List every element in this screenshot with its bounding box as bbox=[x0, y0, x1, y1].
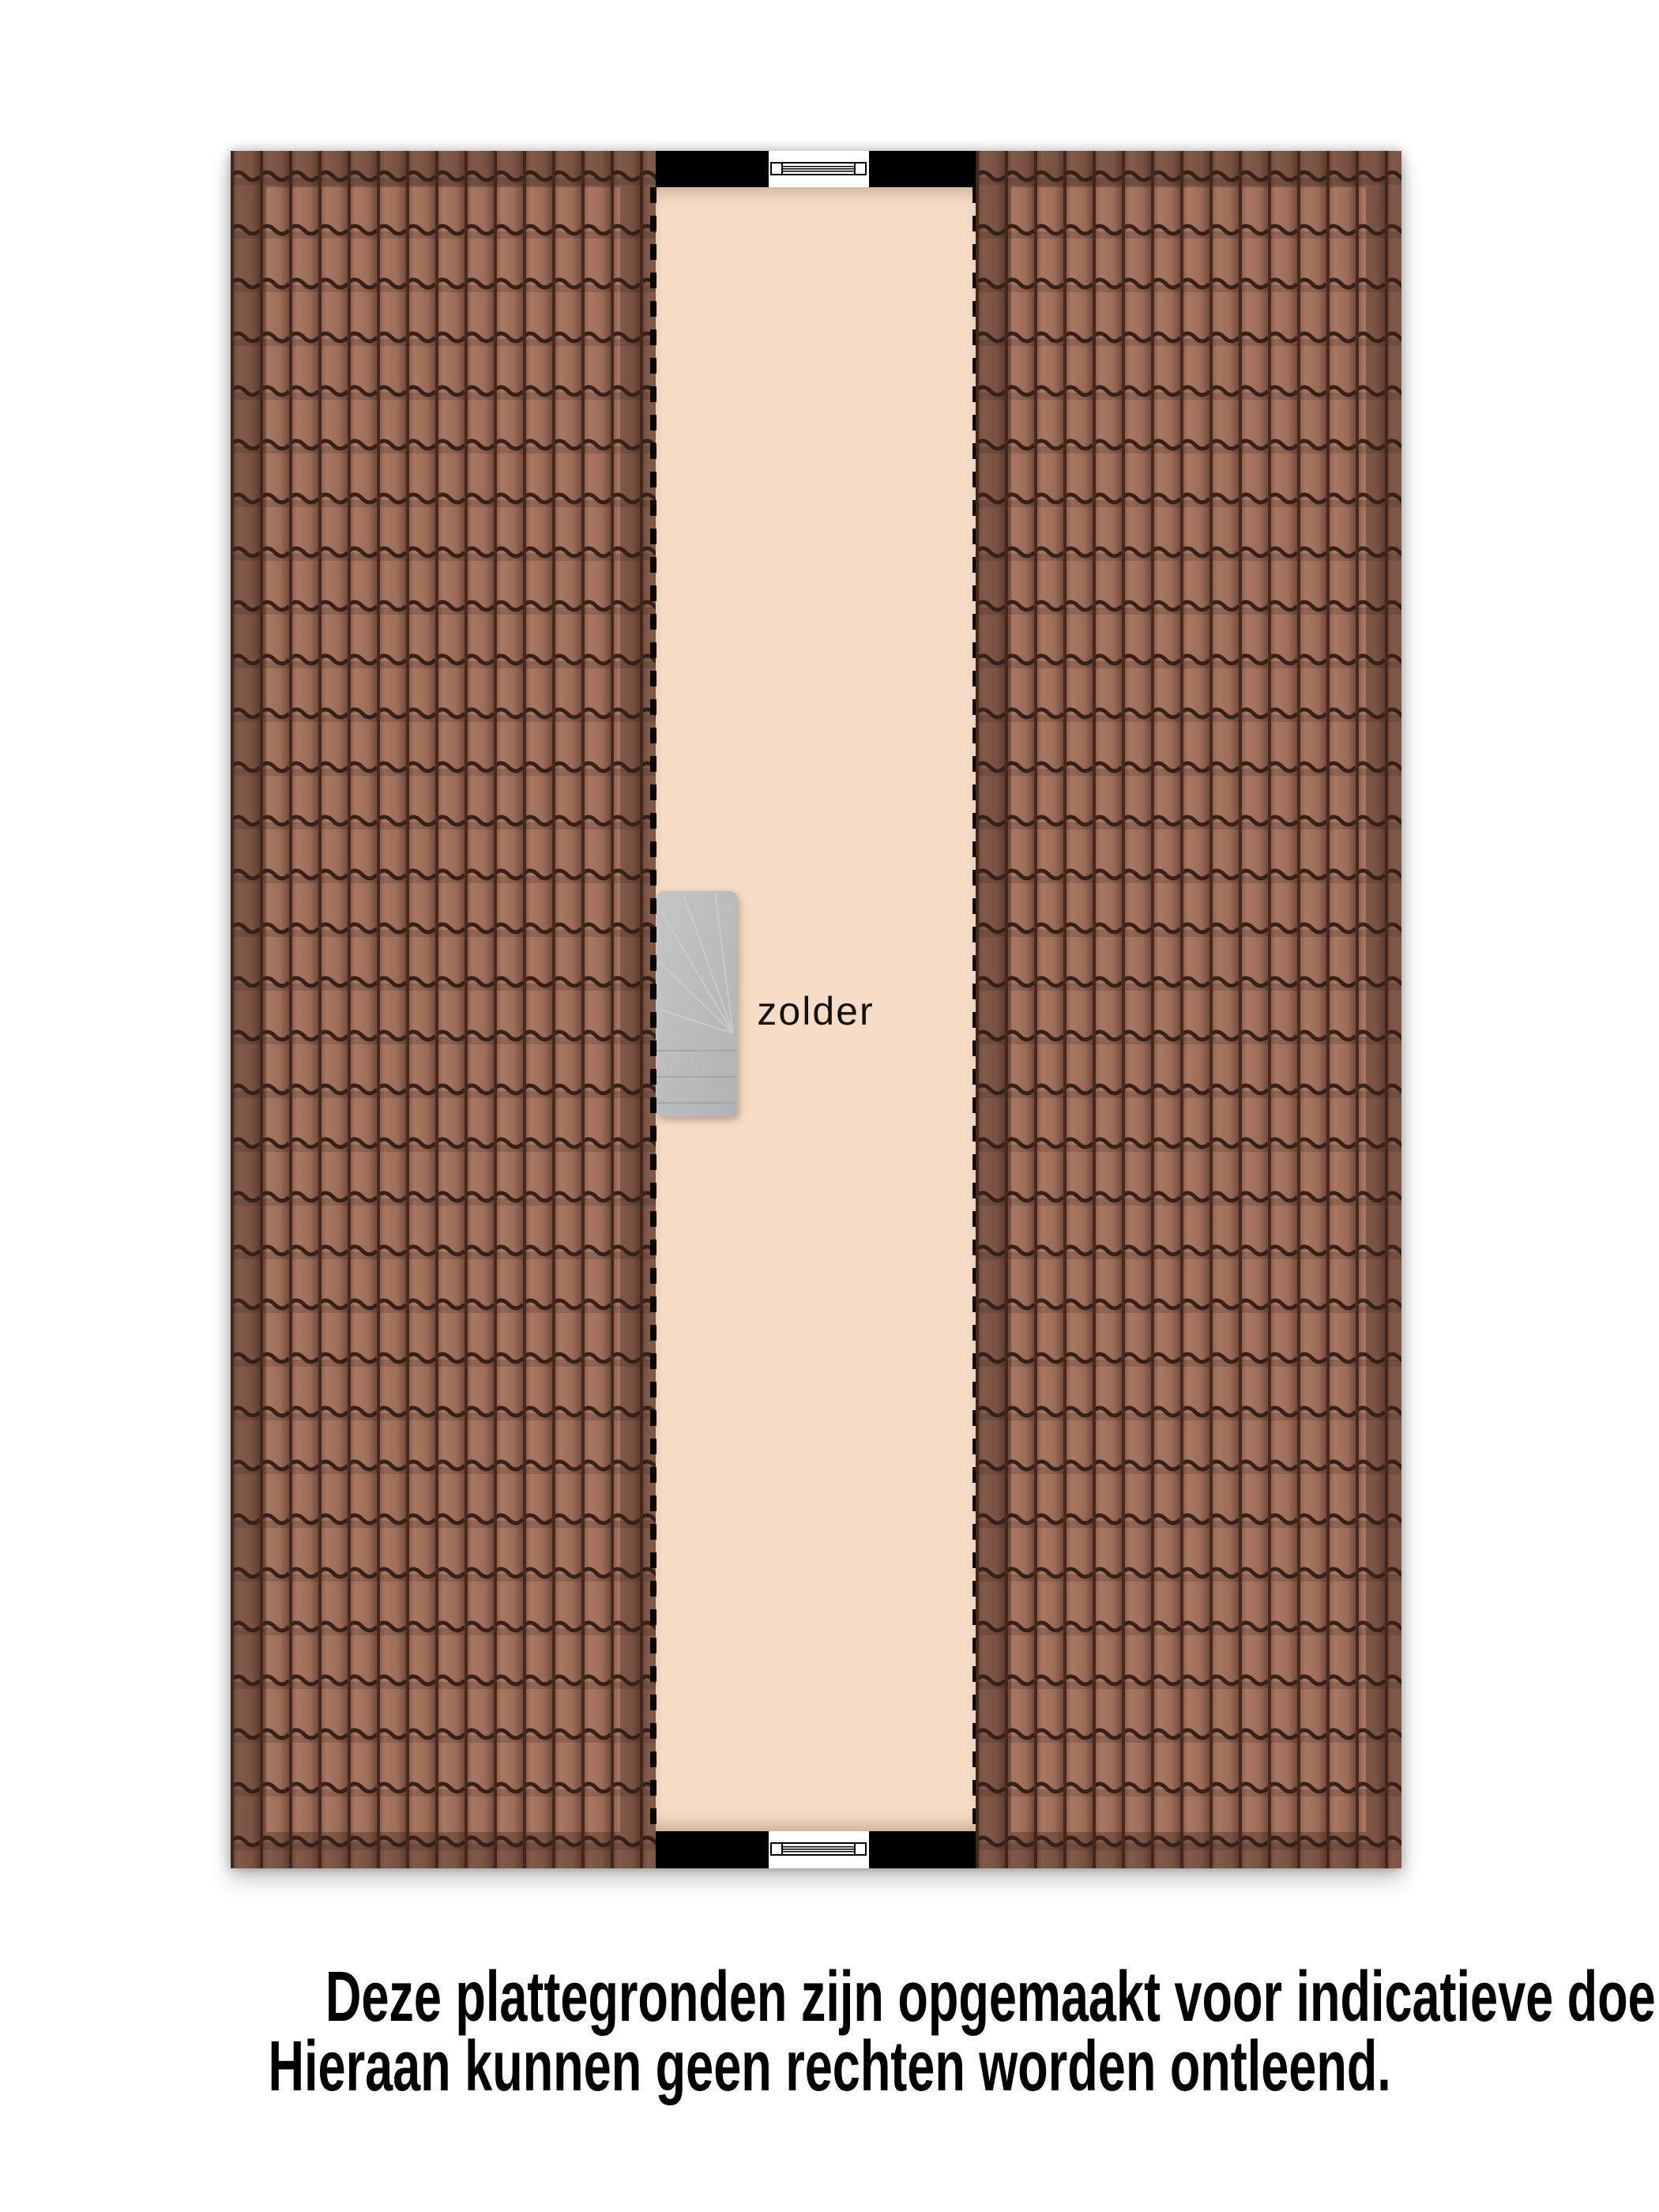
window-icon bbox=[770, 162, 867, 175]
disclaimer-line-1: Deze plattegronden zijn opgemaakt voor i… bbox=[0, 1962, 1659, 2032]
wall-top bbox=[656, 151, 976, 187]
window-post bbox=[772, 1844, 783, 1854]
roof-left bbox=[231, 151, 656, 1868]
roof-tiles-icon bbox=[976, 151, 1401, 1868]
roof-tiles-icon bbox=[231, 151, 656, 1868]
roof-right bbox=[976, 151, 1401, 1868]
window-glazing bbox=[783, 164, 854, 174]
window-icon bbox=[770, 1842, 867, 1856]
window-post bbox=[854, 164, 865, 174]
window-post bbox=[854, 1844, 865, 1854]
window-top bbox=[769, 151, 869, 187]
disclaimer: Deze plattegronden zijn opgemaakt voor i… bbox=[0, 1962, 1659, 2101]
window-glazing bbox=[783, 1844, 854, 1854]
disclaimer-line-2: Hieraan kunnen geen rechten worden ontle… bbox=[0, 2032, 1659, 2101]
floorplan-attic: zolder bbox=[231, 151, 1401, 1868]
room-label: zolder bbox=[656, 988, 976, 1034]
window-bottom bbox=[769, 1831, 869, 1868]
attic-floor: zolder bbox=[656, 187, 976, 1831]
window-post bbox=[772, 164, 783, 174]
wall-bottom bbox=[656, 1831, 976, 1868]
attic-strip: zolder bbox=[656, 151, 976, 1868]
